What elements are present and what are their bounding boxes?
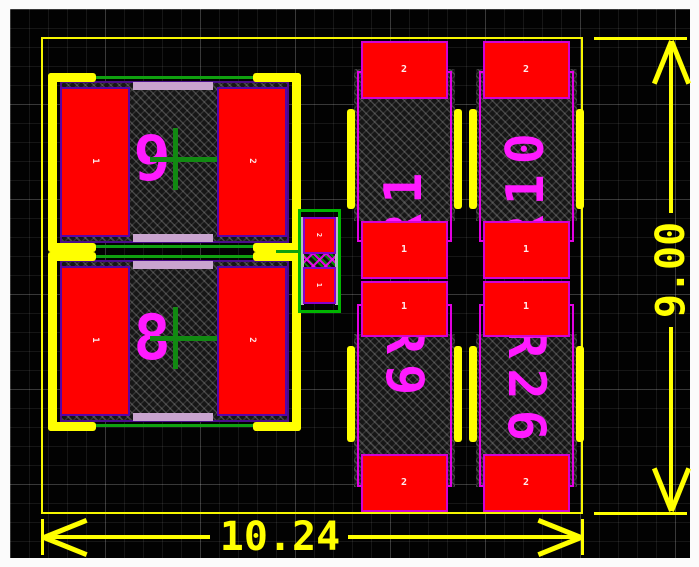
dimension-line-top [669,43,673,213]
silkscreen-side-right [576,346,584,442]
silkscreen-side-right [576,109,584,209]
silkscreen-arm-top-left [48,73,96,82]
paste-bar-top [133,261,213,269]
courtyard-right [572,304,574,487]
origin-cross-vertical [173,307,178,369]
pad-number: 2 [518,62,534,78]
pcb-canvas[interactable]: 1 2 9 1 2 8 [10,9,690,558]
silkscreen-arm-bottom-left [48,243,96,252]
dimension-line-left [50,535,210,539]
pad-number: 1 [396,242,412,258]
dimension-tick-right [581,519,584,555]
pcb-viewer-screenshot: 1 2 9 1 2 8 [0,0,699,567]
origin-cross-horizontal [150,336,226,341]
dimension-value-width[interactable]: 10.24 [207,516,353,558]
pad-number: 1 [518,242,534,258]
pad-number: 2 [396,475,412,491]
silkscreen-side-right [454,346,462,442]
pad-number: 2 [311,227,327,243]
silkscreen-arm-top-right [253,73,301,82]
assembly-line-top [72,76,278,79]
paste-bar-top [133,82,213,90]
silkscreen-side-right [454,109,462,209]
origin-cross-horizontal [150,157,226,162]
pad-number: 2 [244,332,260,348]
courtyard-right [450,71,452,242]
component-9[interactable]: 1 2 9 [48,73,301,252]
pad-number: 2 [518,475,534,491]
courtyard-right [450,304,452,487]
silkscreen-side-left [347,346,355,442]
pad-number: 1 [87,153,103,169]
pad-number: 2 [396,62,412,78]
dimension-line-right [348,535,578,539]
assembly-line-bottom [72,424,278,427]
component-r1[interactable]: 2 1 R1 [347,39,462,281]
courtyard-left [357,71,359,242]
dimension-value-height[interactable]: 9.00 [650,195,692,345]
silkscreen-side-left [469,109,477,209]
pad-number: 1 [396,299,412,315]
silkscreen-bracket-left [48,73,57,252]
silkscreen-side-left [347,109,355,209]
component-r10[interactable]: 2 1 R10 [469,39,584,281]
pad-number: 1 [311,277,327,293]
assembly-line-bottom [72,245,278,248]
pad-number: 1 [87,332,103,348]
assembly-line-top [72,255,278,258]
dimension-tick-bottom [594,512,687,515]
component-r9[interactable]: 1 2 R9 [347,279,462,517]
silkscreen-side-left [469,346,477,442]
component-r26[interactable]: 1 2 R26 [469,279,584,517]
dimension-line-bottom [669,327,673,510]
component-8[interactable]: 1 2 8 [48,252,301,431]
component-small[interactable]: 2 1 [298,209,341,313]
silkscreen-arm-top-left [48,252,96,261]
courtyard-left [479,71,481,242]
silkscreen-arm-bottom-right [253,422,301,431]
courtyard-left [357,304,359,487]
silkscreen-arm-bottom-left [48,422,96,431]
paste-bar-bottom [133,413,213,421]
origin-cross-vertical [173,128,178,190]
paste-bar-bottom [133,234,213,242]
silkscreen-arm-top-right [253,252,301,261]
silkscreen-bracket-left [48,252,57,431]
courtyard-left [479,304,481,487]
pad-number: 2 [244,153,260,169]
courtyard-right [572,71,574,242]
assembly-lead-line [276,250,299,253]
pad-number: 1 [518,299,534,315]
